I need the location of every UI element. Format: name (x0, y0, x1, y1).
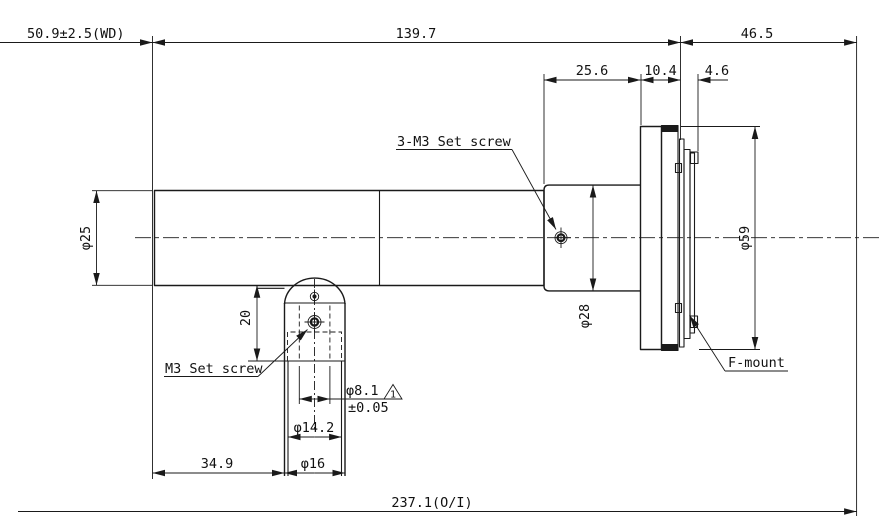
post-top-screw-icon (310, 290, 318, 304)
extension-lines (92, 36, 857, 516)
dim-bore-diameter: φ8.1 (346, 383, 379, 399)
dim-bore-tolerance: ±0.05 (348, 400, 389, 416)
dim-body-length: 139.7 (396, 26, 437, 42)
mount-plate-middle (684, 150, 690, 339)
leader-m3 (258, 330, 308, 377)
knurl-bottom-cap (662, 344, 679, 351)
dim-post-position: 34.9 (201, 456, 234, 472)
mounting-post (248, 278, 345, 476)
note-flag-number: 1 (390, 390, 396, 401)
note-flag-icon: 1 (384, 385, 402, 401)
dim-flange-diameter: φ59 (737, 226, 753, 250)
dim-barrel-diameter: φ25 (78, 226, 94, 250)
dim-post-offset: 20 (238, 310, 254, 326)
label-set-screw-3m3: 3-M3 Set screw (397, 134, 512, 150)
dim-rear-diameter: φ28 (577, 304, 593, 328)
knurl-top-cap (662, 126, 679, 133)
dim-flange-width: 10.4 (644, 63, 677, 79)
dimension-lines (0, 43, 857, 512)
dim-post-diameter: φ16 (301, 456, 325, 472)
drawing-canvas: 1 50.9±2.5(WD) 139.7 46.5 25.6 10.4 4.6 … (0, 0, 886, 529)
post-set-screw-icon (305, 312, 325, 332)
dim-working-distance: 50.9±2.5(WD) (27, 26, 125, 42)
leader-f-mount (690, 316, 726, 372)
label-set-screw-m3: M3 Set screw (165, 361, 263, 377)
rear-set-screw-icon (551, 228, 571, 249)
dim-overall-length: 237.1(O/I) (391, 495, 472, 511)
bayonet-flange (690, 153, 695, 333)
dim-mount-depth: 4.6 (705, 63, 729, 79)
leader-3m3 (512, 150, 556, 230)
dim-rear-length: 46.5 (741, 26, 774, 42)
label-f-mount: F-mount (728, 355, 785, 371)
dim-counterbore-diameter: φ14.2 (294, 420, 335, 436)
lens-mechanical-drawing: 1 50.9±2.5(WD) 139.7 46.5 25.6 10.4 4.6 … (0, 0, 886, 529)
dim-rear-barrel-length: 25.6 (576, 63, 609, 79)
